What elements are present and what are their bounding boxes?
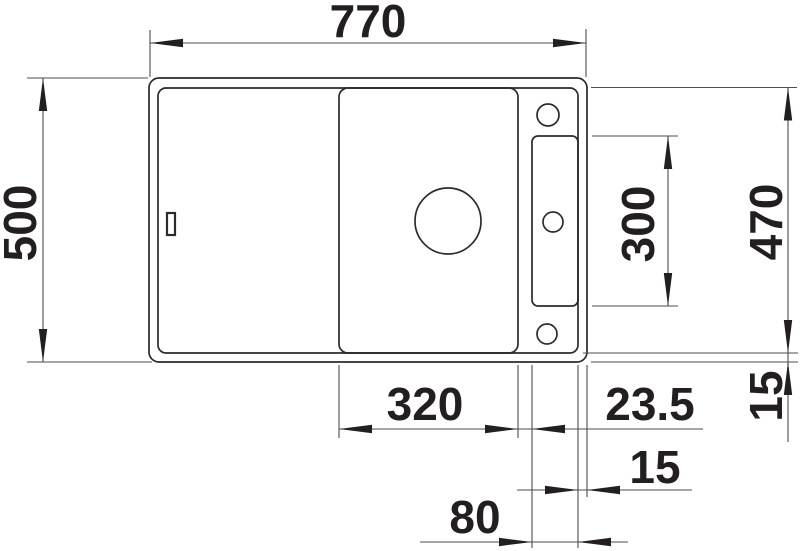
dim-overall-depth: 500 [0, 78, 152, 362]
arrowhead-left [339, 425, 372, 433]
dim-label-slot-width: 80 [449, 491, 500, 543]
dim-label-overall-width: 770 [330, 0, 407, 47]
arrowhead-right [485, 425, 518, 433]
dim-label-bottom-rim: 15 [740, 370, 792, 421]
dim-slot-length: 300 [592, 136, 678, 306]
technical-drawing-canvas: 770 500 470 15 300 [0, 0, 800, 551]
arrowhead-left-outside [587, 486, 620, 494]
dim-overall-width: 770 [150, 0, 586, 77]
arrowhead-down [664, 273, 672, 306]
dim-label-overall-depth: 500 [0, 185, 46, 262]
sink-outer-rim [149, 78, 587, 362]
arrowhead-up [664, 136, 672, 169]
tap-hole-top [537, 104, 559, 126]
drain-hole [415, 188, 481, 254]
dim-bottom-group: 320 23.5 15 80 [339, 365, 703, 548]
arrowhead-up [784, 88, 792, 121]
arrowhead-down [784, 320, 792, 353]
dim-label-bowl-width: 320 [387, 378, 464, 430]
dim-label-bowl-to-slot: 23.5 [605, 378, 695, 430]
arrowhead-down [39, 329, 47, 362]
accessory-slot [532, 136, 578, 306]
arrowhead-left-outside [532, 425, 565, 433]
overflow-notch [167, 213, 175, 235]
dim-label-slot-length: 300 [612, 186, 664, 263]
arrowhead-up [39, 78, 47, 111]
main-bowl [339, 88, 518, 353]
sink-inner-rim [158, 88, 578, 353]
arrowhead-right-outside [545, 486, 578, 494]
arrowhead-left-outside [578, 538, 611, 546]
tap-hole-bottom [537, 324, 557, 344]
dim-right-rim: 15 [517, 441, 692, 494]
dim-label-inner-depth: 470 [740, 184, 792, 261]
tap-hole-middle [543, 212, 563, 232]
sink-drawing: 770 500 470 15 300 [0, 0, 800, 551]
arrowhead-right [553, 39, 586, 47]
dim-slot-width: 80 [420, 491, 628, 546]
sink-outline-group [149, 78, 587, 362]
dim-label-right-rim: 15 [629, 441, 680, 493]
arrowhead-right-outside [499, 538, 532, 546]
dim-bowl-width-and-gap: 320 23.5 [339, 378, 703, 433]
arrowhead-left [150, 39, 183, 47]
